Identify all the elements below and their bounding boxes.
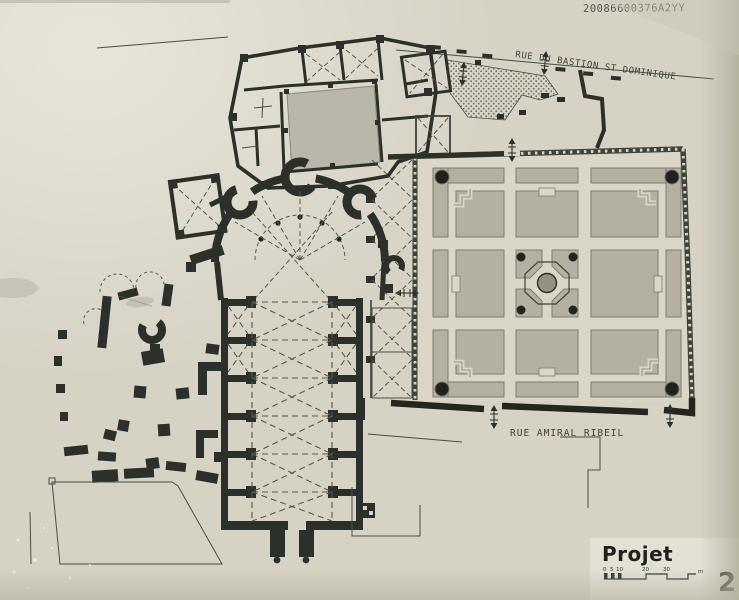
edge-shadow-right — [699, 0, 739, 600]
street-label-amiral: RUE AMIRAL RIBEIL — [510, 428, 624, 439]
fountain-basin — [538, 274, 557, 293]
edge-shadow-bottom — [0, 568, 739, 600]
plan-drawing: 20086600376A2YY RUE DU BASTION ST DOMINI… — [0, 0, 739, 600]
project-label: Projet — [602, 542, 673, 566]
scanned-plan-sheet: 20086600376A2YY RUE DU BASTION ST DOMINI… — [0, 0, 739, 600]
